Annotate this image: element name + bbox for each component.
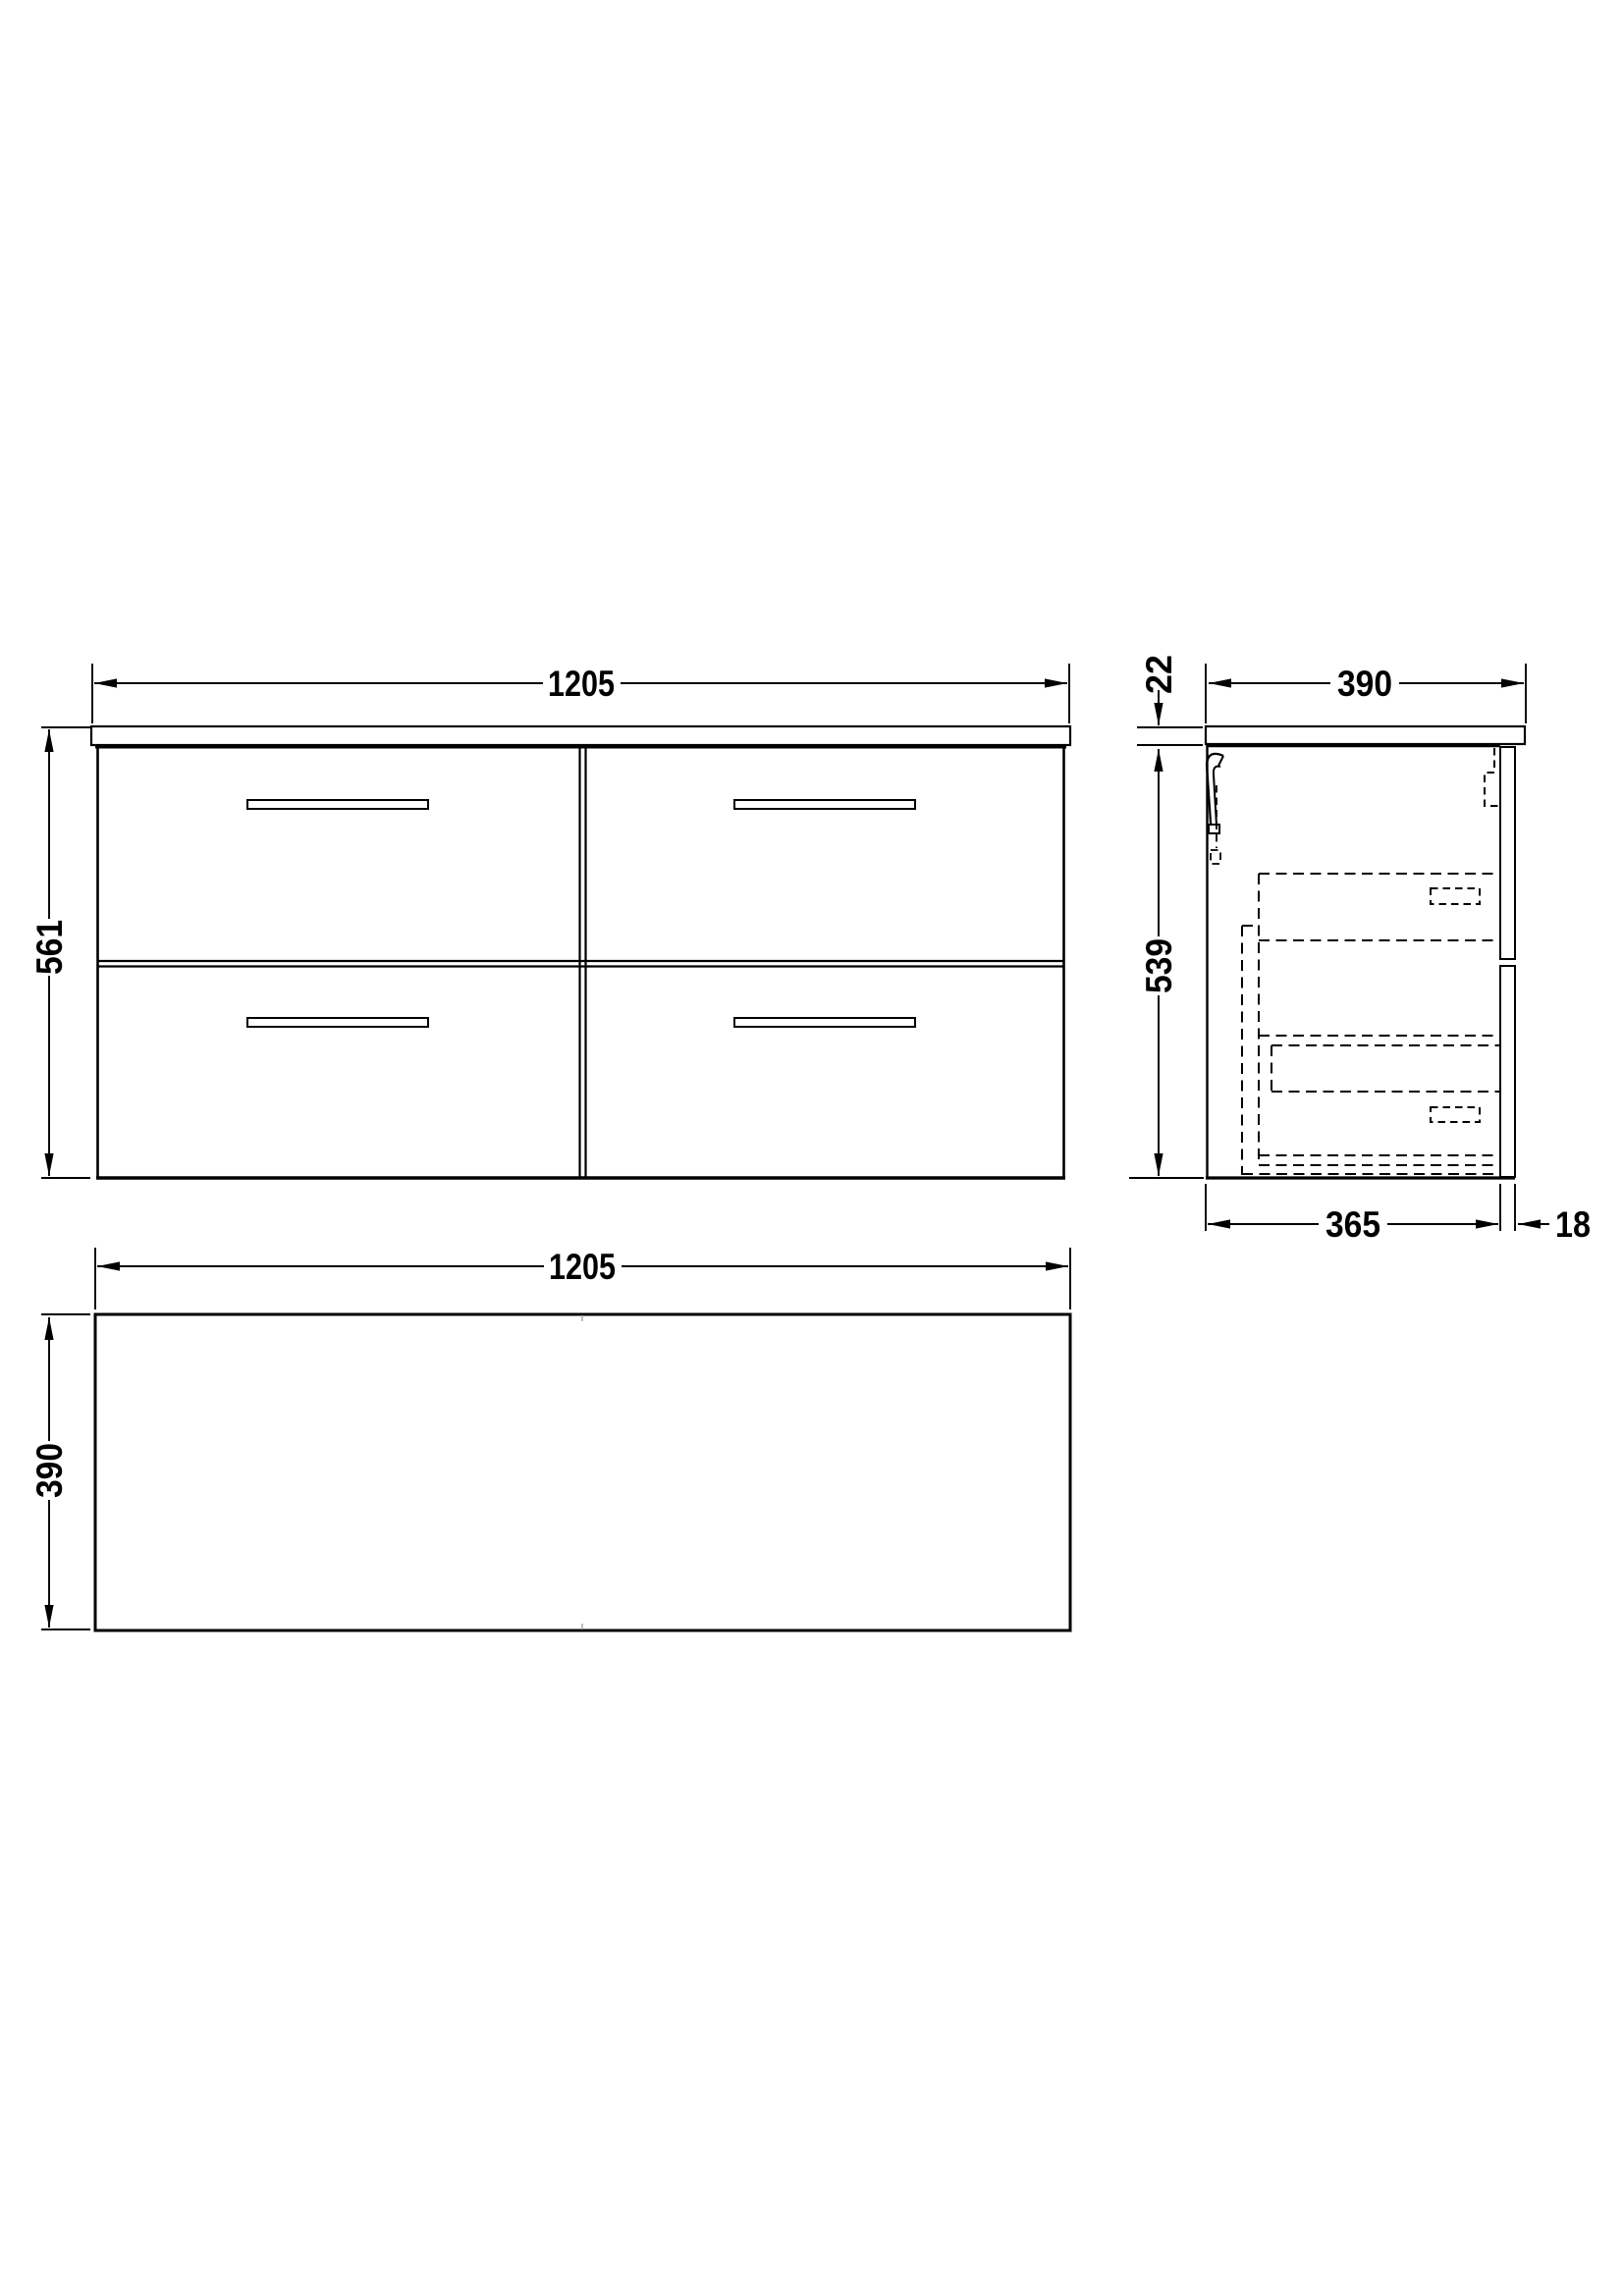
hidden-handle-lower [1431, 1107, 1480, 1122]
front-thickness-label: 18 [1555, 1204, 1591, 1245]
drawer-handle-bottom-right [734, 1018, 915, 1027]
technical-drawing-sheet: 1205 561 [0, 0, 1623, 2296]
drawer-handle-bottom-left [247, 1018, 428, 1027]
front-drawer-dividers [98, 746, 1063, 1177]
worktop-thickness-dimension: 22 [1137, 655, 1203, 745]
plan-width-dimension: 1205 [95, 1247, 1070, 1309]
plan-worktop-outline [95, 1314, 1070, 1630]
hidden-handle-upper [1431, 888, 1480, 904]
worktop-thickness-label: 22 [1139, 655, 1179, 694]
front-height-dimension: 561 [29, 727, 90, 1178]
side-view: 390 22 539 365 18 [1129, 655, 1591, 1245]
side-drawer-fronts [1500, 747, 1515, 1177]
front-height-label: 561 [29, 920, 70, 975]
side-depth-dimension: 390 [1206, 664, 1526, 723]
body-height-dimension: 539 [1129, 749, 1204, 1178]
front-width-dimension: 1205 [92, 664, 1069, 723]
front-view: 1205 561 [29, 664, 1070, 1178]
plan-depth-label: 390 [29, 1443, 70, 1498]
side-drawer-front-upper [1500, 747, 1515, 959]
front-fixing-bracket [1485, 748, 1500, 806]
hidden-drawer-boxes [1242, 874, 1500, 1175]
side-drawer-front-lower [1500, 966, 1515, 1177]
body-depth-dimension: 365 [1206, 1184, 1500, 1245]
plan-view: 1205 390 [29, 1247, 1070, 1630]
front-worktop [91, 726, 1070, 747]
side-depth-label: 390 [1337, 664, 1392, 704]
plan-depth-dimension: 390 [29, 1314, 90, 1629]
wall-bracket [1207, 754, 1223, 864]
drawer-handle-top-right [734, 800, 915, 809]
body-height-label: 539 [1139, 938, 1179, 993]
plan-width-label: 1205 [549, 1247, 616, 1287]
front-thickness-dimension: 18 [1515, 1184, 1591, 1245]
front-width-label: 1205 [548, 664, 615, 704]
body-depth-label: 365 [1325, 1204, 1380, 1245]
side-carcass-outline [1206, 745, 1515, 1178]
front-drawer-handles [247, 800, 915, 1027]
drawer-handle-top-left [247, 800, 428, 809]
side-worktop [1206, 726, 1525, 746]
